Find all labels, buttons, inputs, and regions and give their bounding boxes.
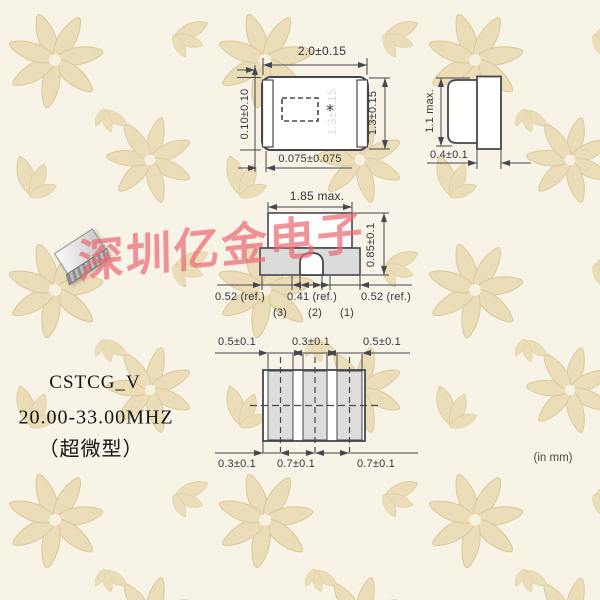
end-cap-side-view xyxy=(477,77,501,150)
resonator-body-side-view xyxy=(448,80,478,143)
cap-width-label: 0.4±0.1 xyxy=(430,149,468,161)
top-height-label: 1.3±0.15 xyxy=(367,91,379,135)
pin3-label: (3) xyxy=(273,307,287,319)
front-height-label: 0.85±0.1 xyxy=(365,223,377,267)
resonator-body-top-view xyxy=(262,77,368,150)
right-electrode xyxy=(357,80,368,147)
pin2-label: (2) xyxy=(308,307,322,319)
side-height-label: 1.1 max. xyxy=(424,89,436,133)
electrode-dim-label: 0.10±0.10 xyxy=(239,89,251,140)
offset-dim-label: 0.075±0.075 xyxy=(278,153,341,165)
pad-center-ref-label: 0.41 (ref.) xyxy=(287,291,337,303)
product-model: CSTCG_V xyxy=(49,372,140,394)
pin1-label: (1) xyxy=(340,307,354,319)
land-top-left-label: 0.5±0.1 xyxy=(218,336,256,348)
left-electrode xyxy=(263,80,274,147)
land-bottom-center-label: 0.7±0.1 xyxy=(277,458,315,470)
land-top-right-label: 0.5±0.1 xyxy=(363,336,401,348)
product-frequency: 20.00-33.00MHZ xyxy=(18,407,173,430)
land-bottom-left-label: 0.3±0.1 xyxy=(218,458,256,470)
land-bottom-right-label: 0.7±0.1 xyxy=(357,458,395,470)
units-note: (in mm) xyxy=(534,452,573,464)
datasheet-page: 2.0±0.15 0.10±0.10 1.3±0.15 1.3±0.15 * 0… xyxy=(0,0,600,600)
polarity-mark: * xyxy=(326,100,334,119)
pad-left-ref-label: 0.52 (ref.) xyxy=(215,291,265,303)
pad-right-ref-label: 0.52 (ref.) xyxy=(361,291,411,303)
land-pattern-drawing xyxy=(215,350,418,456)
land-top-center-label: 0.3±0.1 xyxy=(292,336,330,348)
product-type: （超微型） xyxy=(39,433,144,462)
top-width-label: 2.0±0.15 xyxy=(298,44,346,58)
